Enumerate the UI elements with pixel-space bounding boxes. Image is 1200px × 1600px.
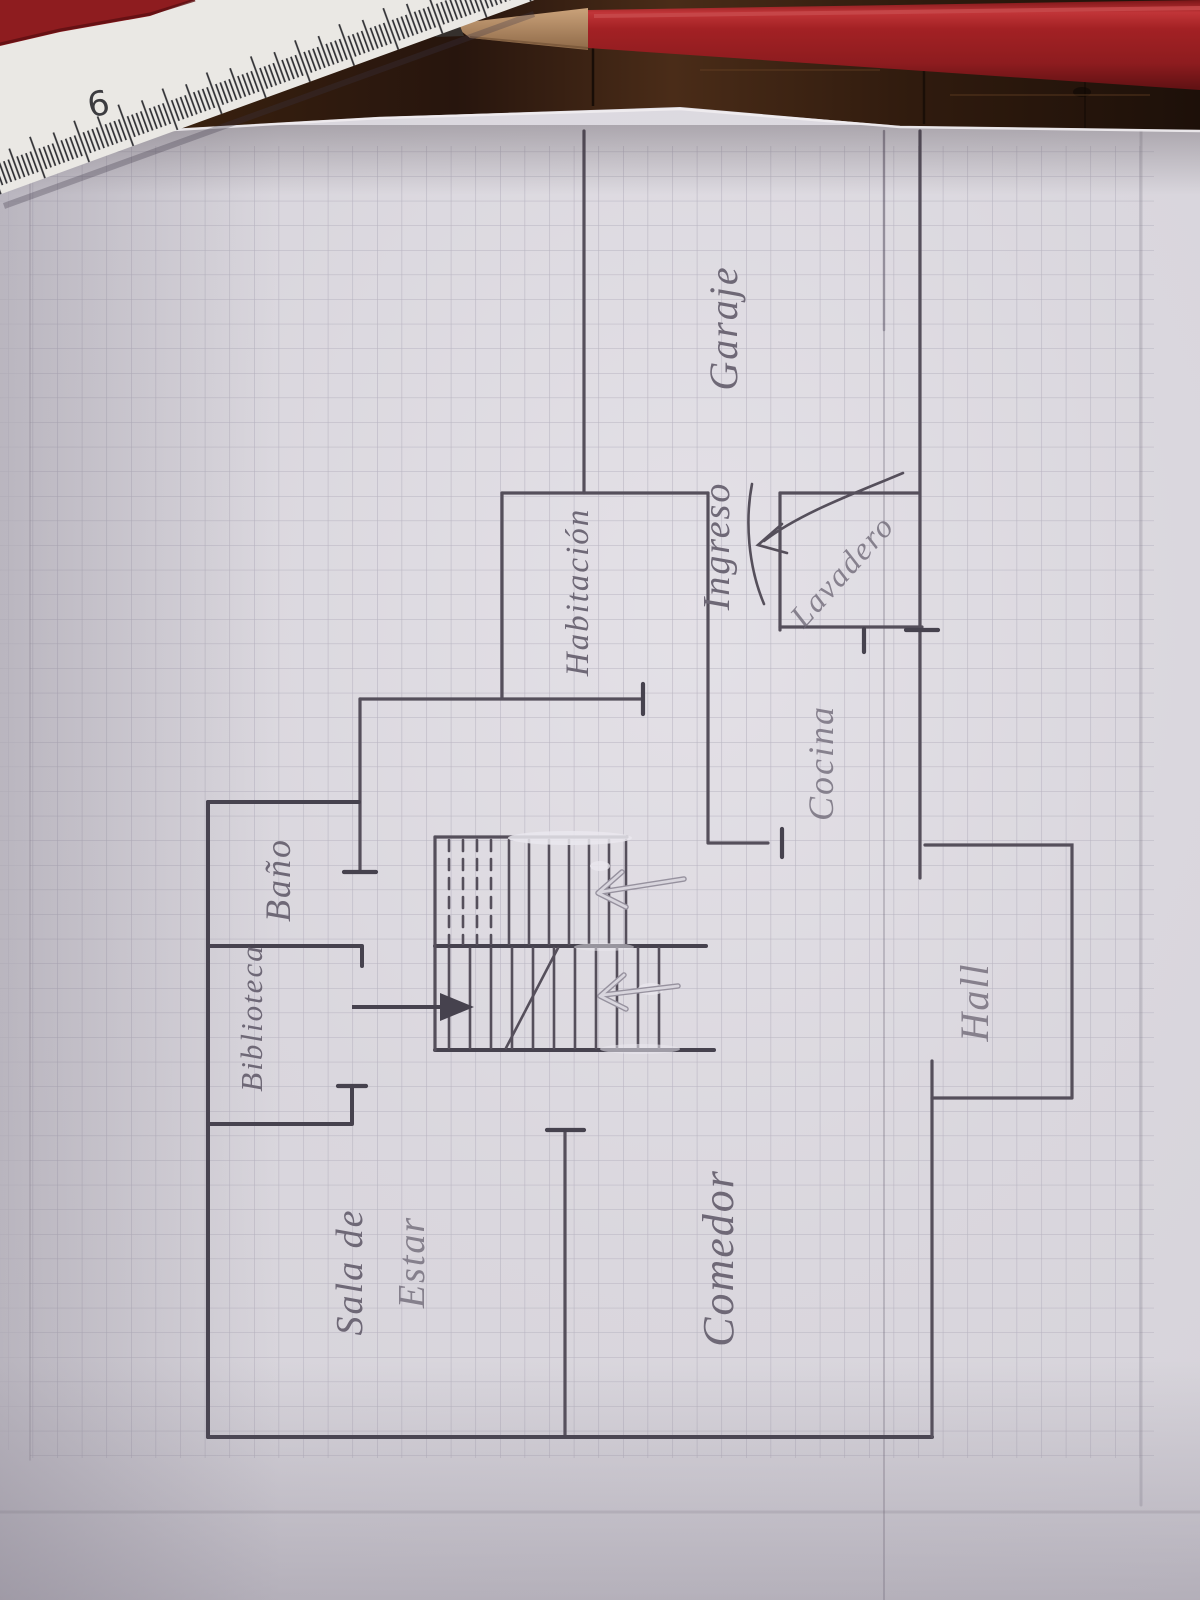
room-label-garaje: Garaje xyxy=(701,265,746,390)
room-label-cocina: Cocina xyxy=(801,705,841,821)
room-label-habitacion: Habitación xyxy=(560,508,596,677)
room-label-estar: Estar xyxy=(391,1216,433,1309)
room-label-sala-de: Sala de xyxy=(329,1209,371,1336)
floor-plan-photo: Garaje Ingreso Lavadero Habitación Cocin… xyxy=(0,0,1200,1600)
table-edge-shadow xyxy=(0,125,1200,195)
bottom-shadow xyxy=(0,1360,1200,1600)
room-label-comedor: Comedor xyxy=(694,1169,743,1347)
room-label-hall: Hall xyxy=(952,962,997,1042)
photo-scene: Garaje Ingreso Lavadero Habitación Cocin… xyxy=(0,0,1200,1600)
room-label-ingreso: Ingreso xyxy=(696,482,738,612)
